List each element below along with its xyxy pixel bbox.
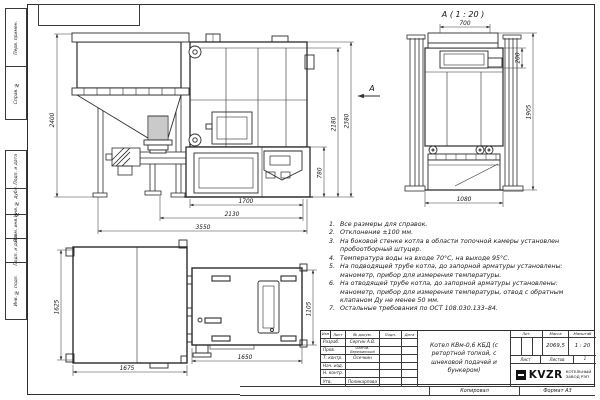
note-text: На боковой стенке котла в области топочн… [340, 238, 588, 255]
lit-header: Лит. [511, 331, 543, 338]
col-dokum: № докум. [346, 331, 380, 339]
row-sign [380, 347, 402, 355]
row-label: Н. контр. [321, 370, 346, 378]
lit-cell-2 [522, 338, 533, 356]
technical-notes: 1.Все размеры для справок. 2.Отклонение … [324, 221, 588, 325]
note-number: 1. [324, 221, 335, 229]
field-podp-data-1: Подп. и дата [6, 151, 26, 189]
note-number: 6. [324, 280, 335, 305]
field-podp-data-2: Подп. и дата [6, 239, 26, 263]
note-number: 2. [324, 229, 335, 237]
format-label: Формат А3 [520, 387, 595, 396]
note-text: Отклонение ±100 мм. [340, 229, 588, 237]
note-item: 3.На боковой стенке котла в области топо… [324, 238, 588, 255]
col-data: Дата [402, 331, 418, 339]
copied-label: Копировал [430, 387, 520, 396]
logo-text: KVZR [529, 370, 563, 381]
field-label: Справ. № [14, 82, 19, 104]
left-fields-top: Перв. примен. Справ. № [5, 8, 27, 120]
scale-value: 1 : 20 [569, 338, 596, 356]
title-block: Изм Лист № докум. Подп. Дата Разраб. Сер… [320, 330, 595, 385]
sheet-label: Лист [511, 356, 541, 364]
note-item: 4.Температура воды на входе 70°С, на вых… [324, 255, 588, 263]
document-title: Котел КВм-0,6 КБД (с ретортной топкой, с… [418, 331, 511, 386]
field-inv-podl: Инв. № подл. [6, 263, 26, 319]
reference-box [38, 4, 140, 26]
row-value [346, 370, 380, 378]
row-value: Осечкин [346, 355, 380, 363]
company-logo: KVZR КОТЕЛЬНЫЙ ЗАВОД РЭП [511, 364, 596, 386]
row-value: Олегов-Вережинский [346, 347, 380, 355]
field-label: Подп. и дата [14, 235, 19, 266]
field-perv-primen: Перв. примен. [6, 9, 26, 67]
row-sign [380, 339, 402, 347]
field-label: Подп. и дата [14, 154, 19, 185]
note-text: Все размеры для справок. [340, 221, 588, 229]
note-number: 3. [324, 238, 335, 255]
mass-header: Масса [543, 331, 569, 338]
row-label: Утв. [321, 378, 346, 386]
note-item: 2.Отклонение ±100 мм. [324, 229, 588, 237]
company-line2: ЗАВОД РЭП [566, 374, 589, 379]
row-date [402, 363, 418, 370]
row-date [402, 378, 418, 386]
col-podp: Подп. [380, 331, 402, 339]
row-value: Сергин А.В. [346, 339, 380, 347]
lit-cell-1 [511, 338, 522, 356]
row-sign [380, 363, 402, 370]
logo-mark-icon [516, 370, 526, 380]
field-label: Инв. № подл. [14, 275, 19, 306]
note-text: На подводящей трубе котла, до запорной а… [340, 263, 588, 280]
note-item: 6.На отводящей трубе котла, до запорной … [324, 280, 588, 305]
field-sprav-no: Справ. № [6, 67, 26, 120]
row-date [402, 370, 418, 378]
row-date [402, 355, 418, 363]
note-text: На отводящей трубе котла, до запорной ар… [340, 280, 588, 305]
note-number: 5. [324, 263, 335, 280]
col-list: Лист [331, 331, 346, 339]
field-label: Перв. примен. [14, 21, 19, 55]
mass-value: 2069,5 [543, 338, 569, 356]
bottom-empty-cell [240, 387, 430, 396]
company-name: КОТЕЛЬНЫЙ ЗАВОД РЭП [566, 370, 592, 379]
note-number: 7. [324, 305, 335, 313]
note-item: 5.На подводящей трубе котла, до запорной… [324, 263, 588, 280]
sheets-label: Листов [541, 356, 574, 364]
note-item: 7.Остальные требования по ОСТ 108.030.13… [324, 305, 588, 313]
row-date [402, 339, 418, 347]
row-label: Разраб. [321, 339, 346, 347]
note-item: 1.Все размеры для справок. [324, 221, 588, 229]
note-number: 4. [324, 255, 335, 263]
row-sign [380, 370, 402, 378]
lit-cell-3 [533, 338, 543, 356]
bottom-strip: Копировал Формат А3 [240, 386, 595, 395]
row-label: Нач. изд. [321, 363, 346, 370]
row-sign [380, 378, 402, 386]
row-value [346, 363, 380, 370]
row-label: Т. контр. [321, 355, 346, 363]
left-fields-bottom: Подп. и дата Инв. № дубл. Взам. инв. № П… [5, 150, 27, 320]
row-label: Пров. [321, 347, 346, 355]
note-text: Остальные требования по ОСТ 108.030.133–… [340, 305, 588, 313]
row-sign [380, 355, 402, 363]
note-text: Температура воды на входе 70°С, на выход… [340, 255, 588, 263]
sheets-value: 1 [574, 356, 596, 364]
scale-header: Масштаб [569, 331, 596, 338]
row-date [402, 347, 418, 355]
col-izm: Изм [321, 331, 331, 339]
drawing-sheet: 2400 780 2180 2380 1700 2130 3550 [0, 0, 600, 400]
row-value: Поликарпова [346, 378, 380, 386]
